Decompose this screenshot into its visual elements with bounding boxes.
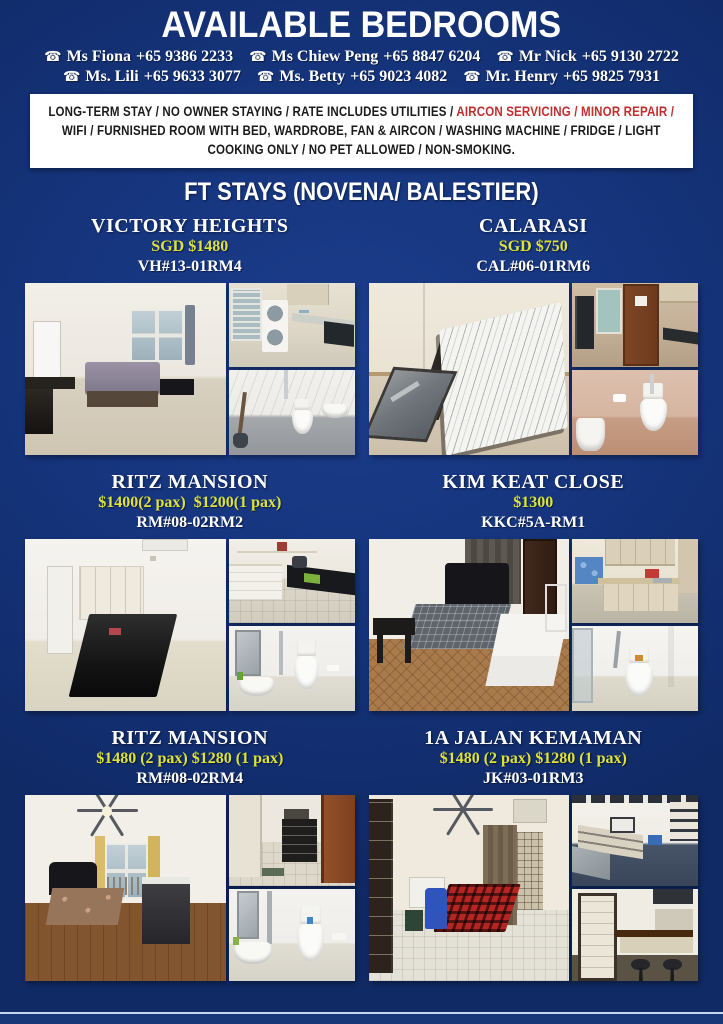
side-photos [572, 539, 698, 711]
photo-bedroom [369, 795, 570, 981]
phone-icon: ☎ [257, 67, 274, 87]
listing-name: CALARASI [369, 215, 699, 237]
closet-shape [229, 795, 262, 877]
listing-card-calarasi: CALARASI SGD $750 CAL#06-01RM6 [369, 215, 699, 455]
photo-bedroom [369, 283, 570, 455]
desk-shape [25, 389, 53, 434]
bar-counter-top-shape [615, 930, 693, 937]
phone-icon: ☎ [63, 67, 80, 87]
footer-bar [0, 1012, 723, 1024]
photo-entryway [229, 795, 355, 887]
contact-phone: +65 9633 3077 [144, 67, 241, 87]
listing-unit: CAL#06-01RM6 [369, 257, 699, 277]
contact-entry: ☎Ms. Lili+65 9633 3077 [63, 67, 241, 87]
contacts-block: ☎Ms Fiona+65 9386 2233 ☎Ms Chiew Peng+65… [0, 47, 723, 87]
listing-price: SGD $750 [369, 237, 699, 257]
fridge-shape [575, 296, 594, 348]
book-shape [109, 628, 121, 635]
glass-panel-shape [572, 628, 592, 703]
photo-collage [25, 283, 355, 455]
table-leg-shape [377, 635, 383, 663]
listing-price: SGD $1480 [25, 237, 355, 257]
bed-base-shape [87, 391, 157, 406]
stairs-shape [670, 802, 698, 840]
ceiling-fan-icon [433, 799, 493, 821]
contact-name: Ms. Lili [85, 67, 138, 87]
bar-stool-shape [663, 959, 682, 970]
hood-shape [653, 889, 693, 904]
contact-name: Mr Nick [519, 47, 577, 67]
toilet-shape [297, 922, 325, 960]
terms-text: LONG-TERM STAY / NO OWNER STAYING / RATE… [44, 102, 678, 160]
tall-cabinet-shape [678, 539, 698, 593]
contact-entry: ☎Ms Fiona+65 9386 2233 [44, 47, 233, 67]
section-title-text: FT STAYS (NOVENA/ BALESTIER) [184, 178, 538, 207]
bottle-shape [233, 937, 239, 945]
cabinet-top-shape [142, 877, 190, 884]
toilet-shape [640, 397, 666, 431]
page-title-text: AVAILABLE BEDROOMS [162, 6, 562, 45]
stove-shape [663, 328, 698, 345]
wall-return-shape [668, 626, 674, 687]
sink-shape [322, 404, 348, 418]
photo-collage [369, 283, 699, 455]
cabinet-shape [287, 284, 330, 304]
window-grille-shape [517, 832, 543, 910]
side-photos [229, 795, 355, 981]
photo-bedroom [25, 283, 226, 455]
contact-entry: ☎Ms Chiew Peng+65 8847 6204 [249, 47, 480, 67]
bar-counter-base-shape [620, 937, 693, 953]
bag-shape [292, 556, 307, 568]
listing-unit: RM#08-02RM4 [25, 769, 355, 789]
listing-card-ritz-mansion-rm2: RITZ MANSION $1400(2 pax) $1200(1 pax) R… [25, 471, 355, 711]
contact-name: Ms Fiona [67, 47, 131, 67]
listing-unit: VH#13-01RM4 [25, 257, 355, 277]
doorway-shape [578, 893, 618, 981]
paper-holder-shape [327, 665, 340, 671]
wardrobe-shape [79, 566, 143, 620]
paper-holder-shape [332, 933, 346, 939]
pipe-shape [267, 891, 272, 944]
listing-price: $1480 (2 pax) $1280 (1 pax) [25, 749, 355, 769]
listing-card-kim-keat-close: KIM KEAT CLOSE $1300 KKC#5A-RM1 [369, 471, 699, 711]
listing-name: RITZ MANSION [25, 727, 355, 749]
window-shape [596, 288, 621, 334]
contact-phone: +65 9825 7931 [563, 67, 660, 87]
aircon-shape [142, 539, 188, 551]
sink-shape [234, 942, 272, 964]
cabinet-shape [142, 884, 190, 944]
mirror-shape [33, 321, 61, 380]
table-leg-shape [405, 635, 411, 663]
bar-stool-shape [631, 959, 650, 970]
washer-dryer-shape [262, 300, 288, 352]
listing-price: $1300 [369, 493, 699, 513]
contact-phone: +65 9130 2722 [582, 47, 679, 67]
mattress-shape [46, 888, 125, 925]
photo-collage [25, 539, 355, 711]
photo-laundry-kitchen [229, 283, 355, 368]
toilet-shape [292, 409, 313, 434]
bottle-shape [237, 672, 243, 680]
upper-cabinet-shape [605, 539, 675, 566]
aircon-shape [513, 799, 547, 823]
photo-bathroom [572, 370, 698, 455]
bucket-shape [233, 433, 248, 448]
wall-corner-shape [423, 283, 425, 376]
listing-card-victory-heights: VICTORY HEIGHTS SGD $1480 VH#13-01RM4 [25, 215, 355, 455]
mirror-shape [237, 891, 260, 939]
mirror-shape [235, 630, 260, 676]
toilet-shape [294, 655, 319, 689]
lower-cabinet-shape [603, 584, 678, 612]
toilet-shape [625, 662, 653, 696]
terms-highlight: AIRCON SERVICING / MINOR REPAIR / [456, 103, 674, 119]
photo-collage [369, 795, 699, 981]
shoe-rack-shape [282, 819, 317, 863]
bed-shape [85, 362, 159, 395]
ladder-rack-shape [545, 584, 567, 633]
phone-icon: ☎ [463, 67, 480, 87]
photo-bathroom [572, 626, 698, 711]
terms-banner: LONG-TERM STAY / NO OWNER STAYING / RATE… [30, 94, 693, 168]
pipe-shape [650, 374, 654, 394]
photo-dining-bar [572, 889, 698, 981]
shower-rail-shape [284, 370, 288, 399]
door-sign-shape [635, 296, 646, 306]
door-shape [47, 566, 73, 654]
pipe-shape [279, 631, 283, 675]
photo-collage [369, 539, 699, 711]
cabinets-shape [229, 564, 282, 599]
socket-shape [150, 556, 156, 561]
office-chair-shape [425, 888, 447, 929]
bottle-shape [635, 655, 643, 661]
listing-unit: KKC#5A-RM1 [369, 513, 699, 533]
side-table-shape [373, 618, 415, 635]
terms-part1: LONG-TERM STAY / NO OWNER STAYING / RATE… [48, 103, 456, 119]
listing-name: KIM KEAT CLOSE [369, 471, 699, 493]
section-title: FT STAYS (NOVENA/ BALESTIER) [0, 178, 723, 207]
contact-phone: +65 8847 6204 [383, 47, 480, 67]
listings-grid: VICTORY HEIGHTS SGD $1480 VH#13-01RM4 [0, 215, 723, 981]
side-photos [572, 283, 698, 455]
photo-kitchen [572, 539, 698, 624]
photo-bathroom [229, 889, 355, 981]
bed-shape [69, 614, 178, 697]
photo-collage [25, 795, 355, 981]
listing-price: $1480 (2 pax) $1280 (1 pax) [369, 749, 699, 769]
photo-bathroom [229, 370, 355, 455]
door-shape [321, 795, 355, 883]
contact-name: Ms. Betty [279, 67, 345, 87]
wardrobe-shape [369, 799, 393, 974]
page-title: AVAILABLE BEDROOMS [0, 6, 723, 45]
curtain-shape [185, 305, 195, 365]
side-photos [572, 795, 698, 981]
phone-icon: ☎ [249, 47, 266, 67]
mat-shape [262, 868, 285, 876]
listing-card-jalan-kemaman: 1A JALAN KEMAMAN $1480 (2 pax) $1280 (1 … [369, 727, 699, 981]
window-shape [130, 309, 184, 362]
side-photos [229, 539, 355, 711]
photo-bedroom [25, 539, 226, 711]
stool-shape [405, 910, 423, 930]
contact-entry: ☎Mr Nick+65 9130 2722 [496, 47, 679, 67]
contact-name: Ms Chiew Peng [272, 47, 379, 67]
flyer-page: AVAILABLE BEDROOMS ☎Ms Fiona+65 9386 223… [0, 0, 723, 1024]
urinal-shape [576, 418, 605, 452]
window-slats-shape [231, 288, 261, 341]
phone-icon: ☎ [44, 47, 61, 67]
contact-phone: +65 9023 4082 [350, 67, 447, 87]
listing-name: 1A JALAN KEMAMAN [369, 727, 699, 749]
listing-price: $1400(2 pax) $1200(1 pax) [25, 493, 355, 513]
sink-shape [239, 677, 274, 696]
red-item-shape [277, 542, 287, 551]
paper-holder-shape [613, 394, 627, 402]
upper-cabinet-shape [660, 283, 698, 303]
contact-entry: ☎Ms. Betty+65 9023 4082 [257, 67, 447, 87]
contact-line-2: ☎Ms. Lili+65 9633 3077 ☎Ms. Betty+65 902… [0, 67, 723, 87]
clutter-shape [284, 809, 309, 818]
bench-shape [160, 379, 194, 394]
serving-hatch-shape [655, 909, 693, 929]
fan-blade [446, 795, 480, 836]
red-box-shape [645, 569, 659, 577]
shower-hose-shape [613, 631, 621, 668]
listing-unit: RM#08-02RM2 [25, 513, 355, 533]
bottle-shape [307, 917, 313, 924]
contact-entry: ☎Mr. Henry+65 9825 7931 [463, 67, 660, 87]
side-photos [229, 283, 355, 455]
blue-box-shape [648, 835, 662, 845]
hob-shape [324, 321, 354, 347]
contact-line-1: ☎Ms Fiona+65 9386 2233 ☎Ms Chiew Peng+65… [0, 47, 723, 67]
terms-part2: WIFI / FURNISHED ROOM WITH BED, WARDROBE… [62, 122, 661, 157]
listing-name: VICTORY HEIGHTS [25, 215, 355, 237]
microwave-shape [610, 817, 635, 833]
phone-icon: ☎ [496, 47, 513, 67]
photo-bedroom [25, 795, 226, 981]
contact-name: Mr. Henry [486, 67, 558, 87]
tap-shape [299, 310, 309, 313]
photo-kitchen [229, 539, 355, 624]
sink-shape [653, 578, 672, 583]
photo-bathroom [229, 626, 355, 711]
console-shape [25, 377, 75, 389]
listing-unit: JK#03-01RM3 [369, 769, 699, 789]
photo-bedroom [369, 539, 570, 711]
photo-kitchen [572, 283, 698, 368]
contact-phone: +65 9386 2233 [136, 47, 233, 67]
marble-bedsheet-shape [439, 302, 567, 454]
photo-kitchen [572, 795, 698, 887]
listing-card-ritz-mansion-rm4: RITZ MANSION $1480 (2 pax) $1280 (1 pax)… [25, 727, 355, 981]
listing-name: RITZ MANSION [25, 471, 355, 493]
